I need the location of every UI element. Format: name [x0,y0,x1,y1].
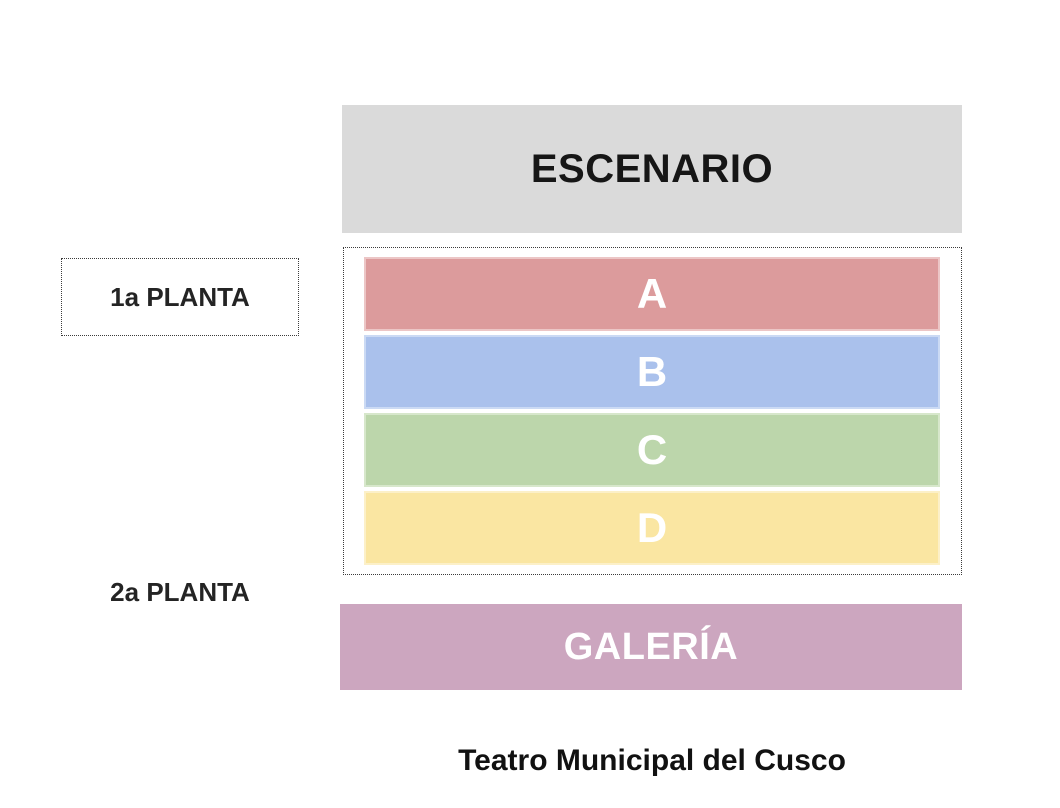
section-band-c: C [364,413,940,487]
section-band-a: A [364,257,940,331]
gallery-label: GALERÍA [564,626,739,669]
floor-1-label-box: 1a PLANTA [61,258,299,336]
stage-box: ESCENARIO [342,105,962,233]
gallery-box: GALERÍA [340,604,962,690]
floor-2-label-wrap: 2a PLANTA [61,577,299,608]
section-label-d: D [637,504,667,552]
floor-2-label: 2a PLANTA [110,577,250,607]
section-label-b: B [637,348,667,396]
section-band-b: B [364,335,940,409]
stage-label: ESCENARIO [531,147,773,192]
section-band-d: D [364,491,940,565]
seating-sections-container: A B C D [343,247,962,575]
diagram-title-wrap: Teatro Municipal del Cusco [322,744,982,778]
section-label-a: A [637,270,667,318]
section-label-c: C [637,426,667,474]
floor-1-label: 1a PLANTA [110,282,250,313]
diagram-title: Teatro Municipal del Cusco [458,744,846,777]
